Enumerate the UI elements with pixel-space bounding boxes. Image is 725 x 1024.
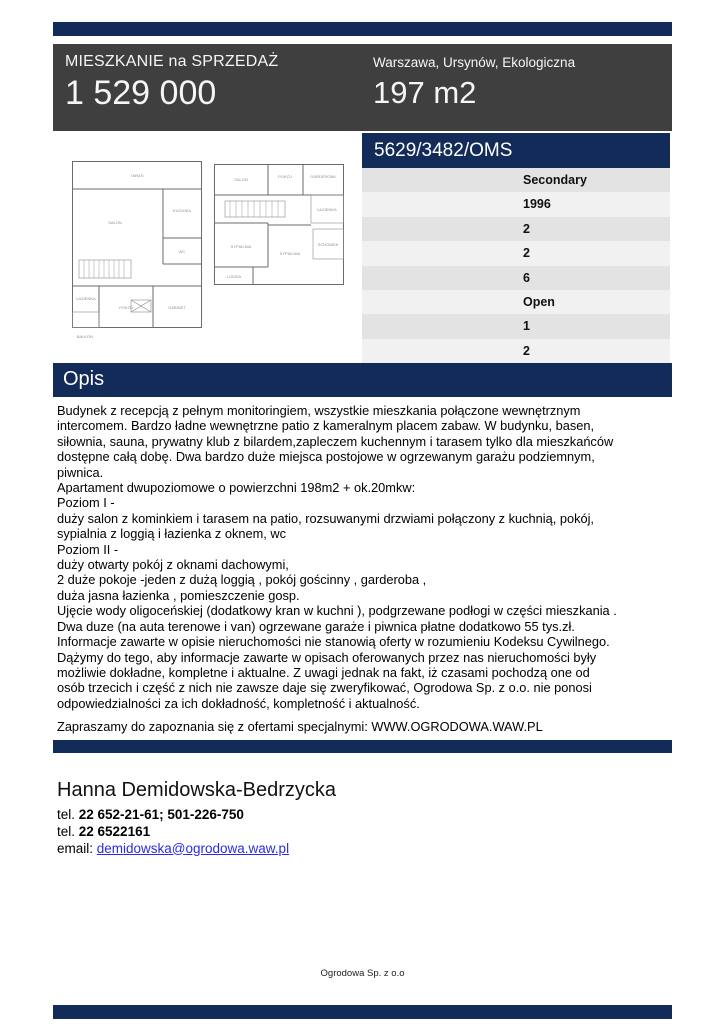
agent-email-link[interactable]: demidowska@ogrodowa.waw.pl: [97, 841, 289, 856]
room-label: SCHOWEK: [318, 242, 339, 247]
room-label: SALON: [108, 220, 122, 225]
bottom-frame-bar: [53, 1005, 672, 1019]
room-label: ŁAZIENKA: [76, 296, 96, 301]
table-row-value: 6: [523, 266, 530, 290]
description-line: Poziom I -: [57, 495, 675, 510]
description-line: Dwa duze (na auta terenowe i van) ogrzew…: [57, 619, 675, 634]
description-line: intercomem. Bardzo ładne wewnętrzne pati…: [57, 418, 675, 433]
stairs-hatch: [84, 260, 124, 278]
footer-company-name: Ogrodowa Sp. z o.o: [0, 968, 725, 979]
description-section-header: Opis: [53, 363, 672, 397]
stairs-hatch: [230, 201, 278, 217]
description-line: 2 duże pokoje -jeden z dużą loggią , pok…: [57, 572, 675, 587]
table-row-value: 1996: [523, 192, 551, 216]
header-left-column: MIESZKANIE na SPRZEDAŻ 1 529 000: [65, 53, 278, 113]
listing-area: 197 m2: [373, 75, 575, 111]
agent-phone-line-1: tel. 22 652-21-61; 501-226-750: [57, 807, 657, 824]
table-row-value: 1: [523, 314, 530, 338]
description-line: osób trzecich i część z nich nie zawsze …: [57, 680, 675, 695]
section-title: Opis: [53, 363, 672, 396]
description-text: Budynek z recepcją z pełnym monitoringie…: [57, 403, 675, 711]
phone-number-1: 22 652-21-61; 501-226-750: [79, 807, 244, 822]
description-line: sypialnia z loggią i łazienka z oknem, w…: [57, 526, 675, 541]
special-offers-line: Zapraszamy do zapoznania się z ofertami …: [57, 719, 675, 734]
floorplans-section: TARAS SALON KUCHNIA WC ŁAZIENKA POKÓJ GA…: [53, 138, 358, 363]
table-row-value: 2: [523, 241, 530, 265]
room-label: SYPIALNIA: [231, 244, 252, 249]
description-line: duży otwarty pokój z oknami dachowymi,: [57, 557, 675, 572]
listing-type-title: MIESZKANIE na SPRZEDAŻ: [65, 53, 278, 71]
description-line: duża jasna łazienka , pomieszczenie gosp…: [57, 588, 675, 603]
reference-number: 5629/3482/OMS: [362, 133, 670, 168]
listing-parameters-table: 5629/3482/OMS Secondary 1996 2 2 6 Open: [362, 133, 670, 363]
floorplan-level2-drawing: SALON POKÓJ GARDEROBA ŁAZIENKA SYPIALNIA…: [213, 163, 345, 289]
description-line: Poziom II -: [57, 542, 675, 557]
table-row: Secondary: [362, 168, 670, 192]
room-label: SYPIALNIA: [280, 251, 301, 256]
agent-contact-block: Hanna Demidowska-Bedrzycka tel. 22 652-2…: [57, 779, 657, 857]
table-row: Open: [362, 290, 670, 314]
room-label: POKÓJ: [278, 174, 292, 179]
section-closing-bar: [53, 740, 672, 753]
room-label: LODŻIA: [227, 274, 242, 279]
table-row: 1996: [362, 192, 670, 216]
email-label: email:: [57, 841, 97, 856]
room-label: SALON: [234, 177, 248, 182]
floorplan-level2-image: SALON POKÓJ GARDEROBA ŁAZIENKA SYPIALNIA…: [213, 163, 345, 289]
table-row: 2: [362, 339, 670, 363]
room-label: ŁAZIENKA: [317, 207, 337, 212]
description-line: Dążymy do tego, aby informacje zawarte w…: [57, 650, 675, 665]
description-line: duży salon z kominkiem i tarasem na pati…: [57, 511, 675, 526]
description-line: odpowiedzialności za ich dokładność, kom…: [57, 696, 675, 711]
top-frame-bar: [53, 22, 672, 36]
description-line: Budynek z recepcją z pełnym monitoringie…: [57, 403, 675, 418]
table-row: 2: [362, 241, 670, 265]
phone-number-2: 22 6522161: [79, 824, 150, 839]
phone-label: tel.: [57, 824, 79, 839]
listing-price: 1 529 000: [65, 74, 278, 113]
listing-table-body: Secondary 1996 2 2 6 Open 1: [362, 168, 670, 363]
agent-name: Hanna Demidowska-Bedrzycka: [57, 779, 657, 802]
table-row: 6: [362, 266, 670, 290]
room-label: KUCHNIA: [173, 208, 191, 213]
description-line: piwnica.: [57, 465, 675, 480]
room-label: TARAS: [130, 173, 143, 178]
room-label: WC: [179, 249, 186, 254]
listing-location: Warszawa, Ursynów, Ekologiczna: [373, 55, 575, 70]
description-line: możliwie dokładne, kompletne i aktualne.…: [57, 665, 675, 680]
table-row-value: 2: [523, 217, 530, 241]
listing-header: MIESZKANIE na SPRZEDAŻ 1 529 000 Warszaw…: [53, 44, 672, 131]
description-line: Ujęcie wody oligoceńskiej (dodatkowy kra…: [57, 603, 675, 618]
room-label: GARDEROBA: [310, 174, 336, 179]
table-row-value: 2: [523, 339, 530, 363]
room-label: BALKON: [77, 334, 93, 339]
description-line: dostępne całą dobę. Dwa bardzo duże miej…: [57, 449, 675, 464]
table-row-value: Open: [523, 290, 555, 314]
description-line: Apartament dwupoziomowe o powierzchni 19…: [57, 480, 675, 495]
description-line: siłownia, sauna, prywatny klub z bilarde…: [57, 434, 675, 449]
description-line: Informacje zawarte w opisie nieruchomośc…: [57, 634, 675, 649]
agent-phone-line-2: tel. 22 6522161: [57, 824, 657, 841]
room-label: GABINET: [168, 305, 186, 310]
header-right-column: Warszawa, Ursynów, Ekologiczna 197 m2: [373, 55, 575, 111]
floorplan-level1-image: TARAS SALON KUCHNIA WC ŁAZIENKA POKÓJ GA…: [71, 160, 203, 342]
table-row-value: Secondary: [523, 168, 587, 192]
table-row: 2: [362, 217, 670, 241]
agent-email-line: email: demidowska@ogrodowa.waw.pl: [57, 841, 657, 858]
table-row: 1: [362, 314, 670, 338]
phone-label: tel.: [57, 807, 79, 822]
floorplan-level1-drawing: TARAS SALON KUCHNIA WC ŁAZIENKA POKÓJ GA…: [71, 160, 203, 342]
